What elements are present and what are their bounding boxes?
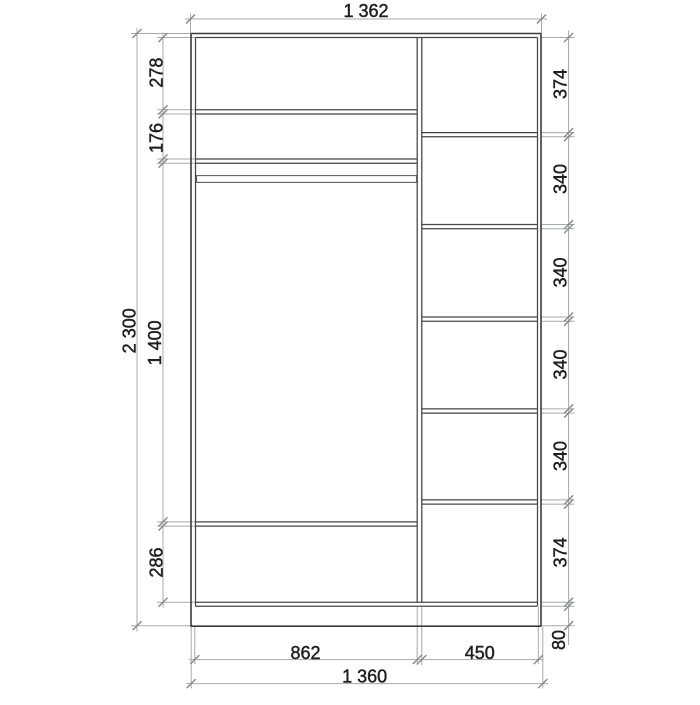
svg-text:2 300: 2 300 — [119, 308, 139, 353]
svg-text:1 360: 1 360 — [342, 667, 387, 687]
svg-text:340: 340 — [551, 164, 571, 194]
svg-text:80: 80 — [549, 630, 569, 650]
svg-text:374: 374 — [551, 69, 571, 99]
svg-text:1 362: 1 362 — [343, 1, 388, 21]
svg-text:450: 450 — [465, 643, 495, 663]
svg-text:340: 340 — [551, 441, 571, 471]
svg-text:862: 862 — [290, 643, 320, 663]
svg-text:340: 340 — [551, 257, 571, 287]
svg-text:286: 286 — [146, 547, 166, 577]
svg-text:176: 176 — [146, 123, 166, 153]
svg-text:374: 374 — [551, 537, 571, 567]
svg-text:340: 340 — [551, 349, 571, 379]
svg-text:278: 278 — [146, 58, 166, 88]
svg-text:1 400: 1 400 — [145, 320, 165, 365]
